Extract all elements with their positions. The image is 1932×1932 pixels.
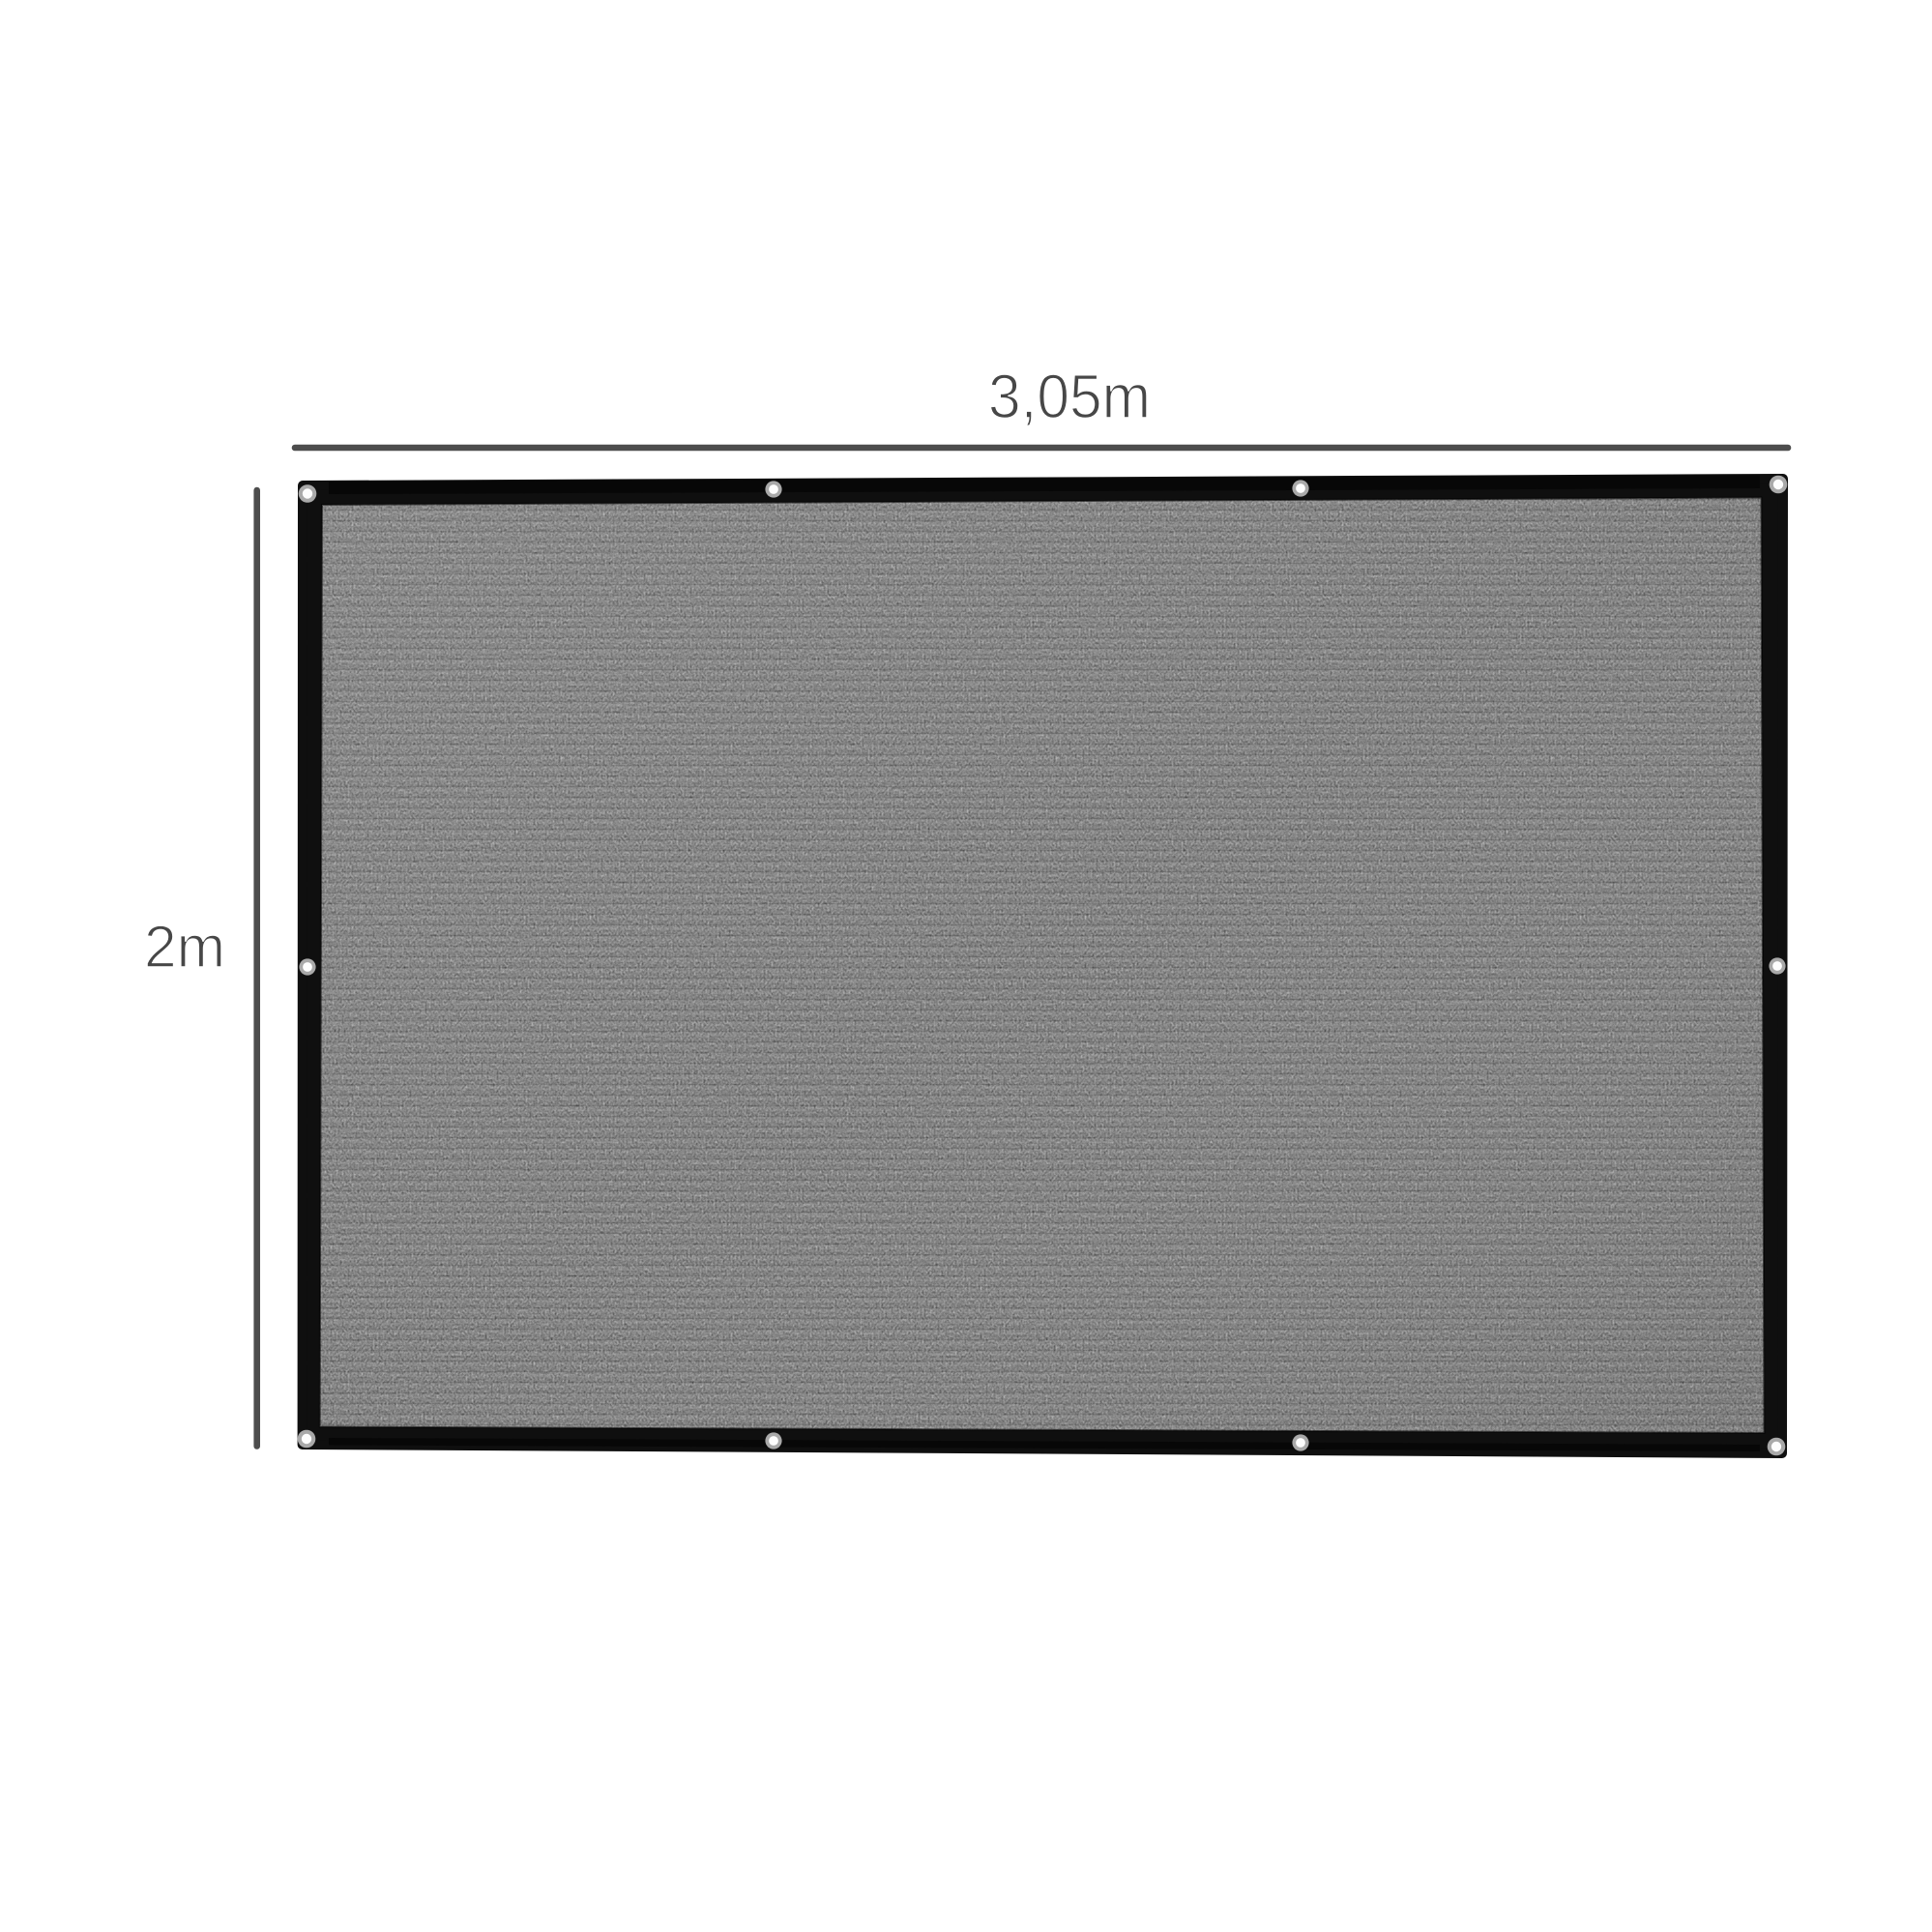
svg-text:3,05m: 3,05m	[988, 362, 1151, 431]
svg-text:2m: 2m	[144, 914, 225, 980]
